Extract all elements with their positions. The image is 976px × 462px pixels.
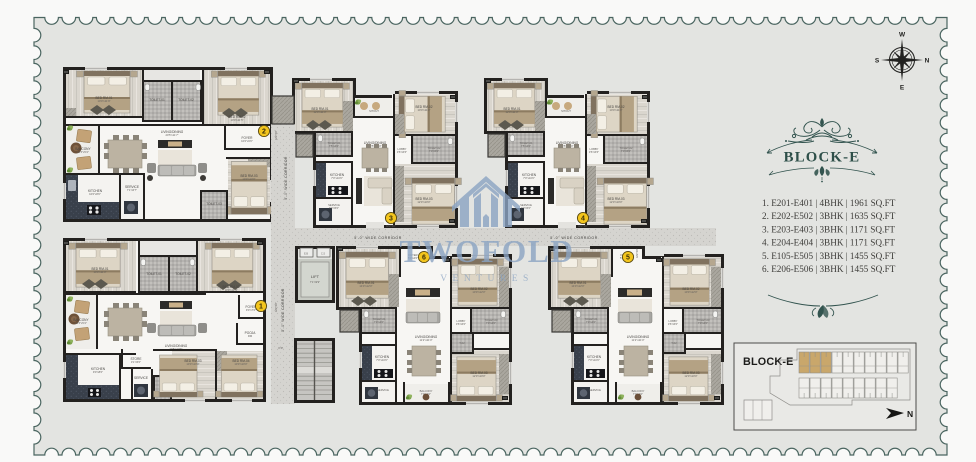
svg-text:E.B: E.B [304, 253, 308, 256]
svg-text:LIFT: LIFT [311, 274, 320, 279]
svg-text:7'0"x4'0": 7'0"x4'0" [698, 321, 708, 325]
svg-text:9'0"x8'0": 9'0"x8'0" [93, 370, 103, 374]
svg-text:5'-0" WIDE CORRIDOR: 5'-0" WIDE CORRIDOR [284, 156, 288, 200]
svg-text:TOILET-02: TOILET-02 [178, 98, 194, 102]
svg-text:ENTRY: ENTRY [386, 224, 396, 228]
svg-text:4: 4 [581, 215, 585, 222]
svg-text:ENTRY: ENTRY [578, 224, 588, 228]
svg-text:SERVICE: SERVICE [377, 388, 389, 392]
svg-text:14'0"x12'0": 14'0"x12'0" [359, 284, 372, 288]
svg-text:9'0"x7'0": 9'0"x7'0" [246, 308, 256, 312]
svg-text:7'0"x4'0": 7'0"x4'0" [586, 320, 596, 324]
svg-text:6. E206-E506 | 3BHK | 1455 SQ.: 6. E206-E506 | 3BHK | 1455 SQ.FT [762, 264, 896, 274]
svg-text:7'0"x10'0": 7'0"x10'0" [376, 358, 388, 362]
svg-text:E: E [900, 85, 905, 92]
svg-text:12'0"x11'0": 12'0"x11'0" [313, 110, 326, 114]
svg-text:3'6"x6'6": 3'6"x6'6" [397, 150, 407, 154]
svg-text:14'0"x12'0": 14'0"x12'0" [571, 284, 584, 288]
svg-text:T-02: T-02 [459, 341, 465, 345]
svg-text:SITOUT: SITOUT [369, 109, 379, 113]
svg-text:SERVICE: SERVICE [589, 388, 601, 392]
svg-text:TOILET-02: TOILET-02 [175, 272, 191, 276]
svg-text:10'0"x11'9": 10'0"x11'9" [97, 99, 110, 103]
svg-text:12'0"x11'0": 12'0"x11'0" [505, 110, 518, 114]
svg-text:3. E203-E403 | 3BHK | 1171 SQ.: 3. E203-E403 | 3BHK | 1171 SQ.FT [762, 224, 895, 234]
svg-text:2: 2 [262, 128, 266, 135]
svg-text:3'1"x5'0": 3'1"x5'0" [131, 360, 141, 364]
svg-text:T-02: T-02 [671, 341, 677, 345]
svg-text:7'0"x10'0": 7'0"x10'0" [523, 176, 535, 180]
svg-text:3'6"x6'0": 3'6"x6'0" [456, 322, 466, 326]
svg-text:SITOUT: SITOUT [561, 109, 571, 113]
svg-text:C.S: C.S [321, 253, 325, 256]
svg-text:3'6"x6'0": 3'6"x6'0" [668, 322, 678, 326]
svg-text:7'1"x9'9": 7'1"x9'9" [310, 280, 320, 284]
svg-text:20'5"x11'7": 20'5"x11'7" [165, 133, 178, 137]
svg-text:12'0"x10'0": 12'0"x10'0" [417, 200, 430, 204]
svg-text:7'0"x5'0": 7'0"x5'0" [521, 206, 531, 210]
svg-text:7'0"x5'0": 7'0"x5'0" [329, 206, 339, 210]
svg-text:P.P.: P.P. [279, 346, 284, 350]
svg-text:10'0"x11'0": 10'0"x11'0" [93, 270, 106, 274]
svg-text:TOILET-03: TOILET-03 [206, 202, 222, 206]
svg-text:11'2"x21'0": 11'2"x21'0" [631, 338, 644, 342]
svg-text:BLOCK-E: BLOCK-E [784, 150, 861, 166]
svg-text:1. E201-E401 | 4BHK | 1961 SQ.: 1. E201-E401 | 4BHK | 1961 SQ.FT [762, 198, 896, 208]
svg-text:3: 3 [389, 215, 393, 222]
svg-text:7'0"x5'0": 7'0"x5'0" [621, 149, 631, 153]
svg-text:5'-0" WIDE CORRIDOR: 5'-0" WIDE CORRIDOR [281, 288, 285, 332]
svg-text:10'0"x8'0": 10'0"x8'0" [89, 192, 101, 196]
svg-text:7'0"x4'0": 7'0"x4'0" [374, 320, 384, 324]
svg-text:1: 1 [259, 303, 263, 310]
svg-text:SERVICE: SERVICE [134, 376, 148, 380]
svg-text:12'5"x5'4": 12'5"x5'4" [77, 150, 89, 154]
svg-text:5. E105-E505 | 3BHK | 1455 SQ.: 5. E105-E505 | 3BHK | 1455 SQ.FT [762, 251, 896, 261]
svg-text:5: 5 [626, 254, 630, 261]
svg-text:10'0"x10'9": 10'0"x10'9" [242, 177, 255, 181]
svg-text:12'0"x10'0": 12'0"x10'0" [684, 374, 697, 378]
svg-text:7'0"x4'0": 7'0"x4'0" [486, 321, 496, 325]
svg-text:7'5"x4'0": 7'5"x4'0" [329, 144, 339, 148]
svg-text:TWOFOLD: TWOFOLD [399, 234, 574, 269]
svg-text:W: W [899, 32, 906, 39]
svg-text:10'0"x11'5": 10'0"x11'5" [230, 118, 243, 122]
svg-text:ENTRY: ENTRY [274, 302, 278, 312]
svg-text:ENTRY: ENTRY [635, 248, 639, 258]
svg-text:10'0"x11'0": 10'0"x11'0" [609, 108, 622, 112]
svg-text:VENTURES: VENTURES [440, 274, 534, 284]
svg-text:10'0"x10'0": 10'0"x10'0" [234, 362, 247, 366]
svg-text:7'1"x6'7": 7'1"x6'7" [127, 188, 137, 192]
svg-text:7'5"x4'0": 7'5"x4'0" [521, 144, 531, 148]
svg-text:11'2"x21'0": 11'2"x21'0" [419, 338, 432, 342]
svg-text:7'0"x5'0": 7'0"x5'0" [429, 149, 439, 153]
svg-text:TOILET-01: TOILET-01 [149, 98, 165, 102]
svg-text:4. E204-E404 | 3BHK | 1171 SQ.: 4. E204-E404 | 3BHK | 1171 SQ.FT [762, 238, 895, 248]
svg-text:10'0"x11'0": 10'0"x11'0" [417, 108, 430, 112]
svg-text:12'0"x10'0": 12'0"x10'0" [609, 200, 622, 204]
svg-text:N: N [907, 409, 913, 419]
svg-text:10'0"x12'0": 10'0"x12'0" [684, 290, 697, 294]
svg-text:7'0"x10'0": 7'0"x10'0" [331, 176, 343, 180]
svg-text:5'-0" WIDE CORRIDOR: 5'-0" WIDE CORRIDOR [354, 236, 402, 240]
svg-text:12'5"x5'4": 12'5"x5'4" [75, 321, 87, 325]
svg-text:10'0"x10'0": 10'0"x10'0" [186, 362, 199, 366]
svg-text:TOILET-01: TOILET-01 [146, 272, 162, 276]
svg-text:3'6"x6'6": 3'6"x6'6" [589, 150, 599, 154]
svg-text:10'0"x12'0": 10'0"x12'0" [472, 290, 485, 294]
svg-text:S: S [875, 57, 880, 64]
svg-text:BLOCK-E: BLOCK-E [743, 356, 794, 368]
svg-text:2. E202-E502 | 3BHK | 1635 SQ.: 2. E202-E502 | 3BHK | 1635 SQ.FT [762, 211, 896, 221]
svg-text:ENTRY: ENTRY [274, 130, 278, 140]
svg-text:10'0"x6'0": 10'0"x6'0" [241, 139, 253, 143]
svg-text:N: N [925, 57, 930, 64]
svg-text:12'0"x10'0": 12'0"x10'0" [472, 374, 485, 378]
svg-text:7'0"x10'0": 7'0"x10'0" [588, 358, 600, 362]
